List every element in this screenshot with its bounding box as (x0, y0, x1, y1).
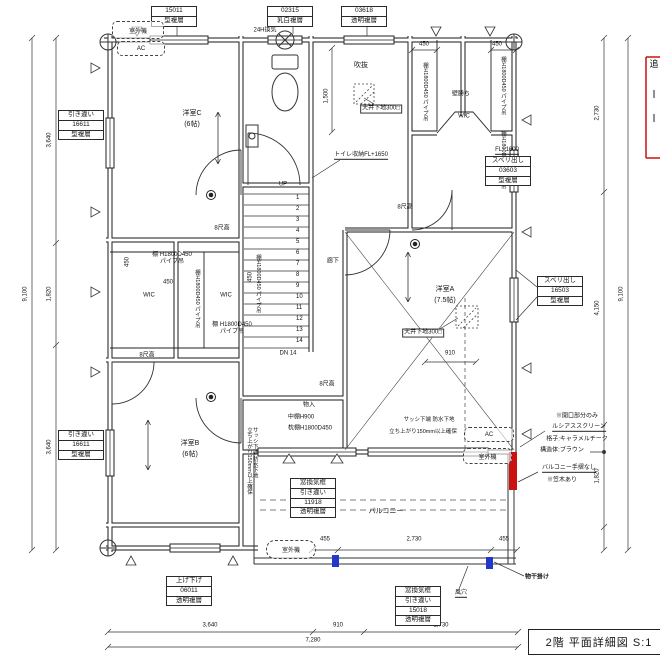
dim-balcony-3: 455 (499, 537, 509, 544)
vent24h-label: 24H換気 (253, 28, 276, 35)
dim-balcony-2: 2,730 (406, 537, 421, 544)
dim-450: 450 (419, 42, 429, 49)
ac-box-right: AC (464, 427, 514, 442)
dim-450: 450 (492, 42, 502, 49)
room-label-wic-top: WIC (458, 114, 470, 121)
outdoor-unit-box-balcony: 室外機 (266, 540, 316, 559)
dim-balcony-1: 455 (320, 537, 330, 544)
dim-bottom-2: 910 (333, 623, 343, 630)
stair-step-number: 4 (296, 226, 303, 237)
shelf-pipe-label-h: 棚 H1800D450 パイプ吊 (152, 252, 192, 266)
dim-450: 450 (163, 280, 173, 287)
height-8shaku-label: 8尺高 (319, 382, 334, 389)
room-size-yoshitsuC: (6帖) (184, 121, 200, 129)
stair-step-number: 6 (296, 248, 303, 259)
room-size-yoshitsuB: (6帖) (182, 451, 198, 459)
shelf-pipe-label-v: 棚H1800D450 パイプ吊 (421, 63, 427, 121)
tag-row: 型複層 (537, 296, 583, 307)
dim-450: 450 (248, 272, 255, 282)
dim-left-2: 1,820 (47, 286, 54, 301)
stair-step-number: 2 (296, 204, 303, 215)
height-8shaku-label: 8尺高 (214, 226, 229, 233)
shelf-pipe-label-h: 棚 H1800D450 パイプ吊 (212, 322, 252, 336)
window-tag-06011: 上げ下げ 06011 透明複層 (166, 577, 212, 606)
structure-note: 構造体:ブラウン (540, 448, 584, 455)
dim-1500: 1,500 (324, 88, 331, 103)
walls-inner-core (104, 36, 518, 552)
opening-note1: ※開口部分のみ (556, 414, 598, 421)
window-tag-03603: スベリ出し 03603 型複層 (485, 157, 531, 186)
outdoor-unit-box-right: 室外機 (463, 448, 512, 464)
toilet-fixture (246, 55, 298, 147)
dim-right-1: 2,730 (595, 105, 602, 120)
shelf-pipe-label-v: 棚H1800D450 パイプ吊 (499, 57, 505, 115)
dim-450: 450 (125, 257, 132, 267)
tag-row: 型複層 (485, 176, 531, 187)
room-label-void: 吹抜 (354, 62, 368, 70)
tag-row: 型複層 (58, 130, 104, 141)
opening-note2: ルシアススクリーン (552, 424, 606, 432)
coping-note: ※笠木あり (547, 478, 577, 485)
stair-step-number: 8 (296, 270, 303, 281)
floor-plan-sheet: 15011 型複層 02315 乳白複層 03618 透明複層 引き違い 166… (0, 0, 660, 660)
room-label-hall: 廊下 (327, 259, 339, 266)
tag-row: 型複層 (58, 450, 104, 461)
stair-step-number: 13 (296, 325, 303, 336)
closet-shelf-mid-label: 中棚H900 (288, 415, 314, 422)
sash-note-vertical: サッシ下端 防水下地 立ち上がり150mm以上確保 (245, 427, 257, 527)
height-8shaku-label: 8尺高 (139, 353, 154, 360)
room-label-wic-mid: WIC (220, 293, 232, 300)
ac-label: AC (485, 432, 493, 438)
stair-step-number: 7 (296, 259, 303, 270)
dim-left-3: 3,640 (47, 439, 54, 454)
shelf-pipe-line2: パイプ吊 (212, 329, 252, 336)
outdoor-unit-box-topleft: 室外機 (112, 21, 164, 39)
shelf-pipe-line2: パイプ吊 (152, 259, 192, 266)
room-label-yoshitsuB: 洋室B (181, 440, 200, 448)
dim-910: 910 (445, 351, 455, 358)
height-8shaku-label: 8尺高 (397, 205, 412, 212)
window-tag-16611-upper: 引き違い 16611 型複層 (58, 111, 104, 140)
dim-right-2: 4,150 (595, 300, 602, 315)
room-label-yoshitsuC: 洋室C (182, 110, 201, 118)
shelf-pipe-label-v: 棚H1800D450 パイプ吊 (193, 270, 199, 328)
tag-row: 透明複層 (166, 596, 212, 607)
room-label-closet: 物入 (303, 403, 315, 410)
stair-step-number: 1 (296, 193, 303, 204)
room-label-yoshitsuA: 洋室A (436, 286, 455, 294)
window-tag-02315: 02315 乳白複層 (267, 7, 313, 27)
stairs-up-label: UP (279, 182, 287, 189)
stair-step-number: 12 (296, 314, 303, 325)
stair-step-numbers: 1 2 3 4 5 6 7 8 9 10 11 12 13 14 (296, 193, 303, 347)
dim-left-total: 9,100 (23, 286, 30, 301)
stair-step-number: 11 (296, 303, 303, 314)
window-tag-03618: 03618 透明複層 (341, 7, 387, 27)
stair-step-number: 10 (296, 292, 303, 303)
window-tag-16611-lower: 引き違い 16611 型複層 (58, 431, 104, 460)
title-block: 2階 平面詳細図 S:1 (528, 629, 660, 655)
closet-shelf-pillow-label: 枕棚H1800D450 (288, 426, 332, 433)
window-tag-15018: 窓換気框 引き違い 15018 透明複層 (395, 587, 441, 626)
sash-note-line1: サッシ下端 防水下地 (403, 417, 454, 423)
ac-box-topleft: AC (117, 41, 165, 56)
stair-step-number: 9 (296, 281, 303, 292)
cutoff-red-note-frame (646, 57, 660, 158)
window-tag-16503: スベリ出し 16503 型複層 (537, 277, 583, 306)
laundry-pole-label: 物干掛け (525, 575, 549, 582)
tag-row: 透明複層 (341, 16, 387, 27)
sash-note-line2: 立ち上がり150mm以上確保 (389, 429, 457, 435)
wall-priority-label: 壁勝ち (452, 92, 470, 99)
dim-right-3: 1,820 (595, 468, 602, 483)
window-tag-11918: 窓換気框 引き違い 11918 透明複層 (290, 479, 336, 518)
vent-hole-label: 風穴 (455, 590, 467, 598)
dim-right-total: 9,100 (619, 286, 626, 301)
stair-step-number: 5 (296, 237, 303, 248)
sheet-title: 2階 平面詳細図 S:1 (546, 634, 653, 650)
dim-left-1: 3,640 (47, 132, 54, 147)
room-label-wic-left: WIC (143, 293, 155, 300)
outdoor-unit-label: 室外機 (478, 452, 496, 461)
dim-bottom-total: 7,280 (305, 638, 320, 645)
laundry-hook-marker (486, 557, 493, 569)
room-size-yoshitsuA: (7.5帖) (434, 297, 455, 305)
outdoor-unit-label: 室外機 (129, 26, 147, 35)
tag-row: 透明複層 (290, 507, 336, 518)
ac-label: AC (137, 46, 145, 52)
ceiling-base-label-roomA: 天井下地300□ (402, 329, 444, 338)
shelf-pipe-label-v: 棚H1800D450 パイプ吊 (254, 255, 260, 313)
stair-step-number: 3 (296, 215, 303, 226)
sash-note-line2: 立ち上がり150mm以上確保 (245, 427, 251, 527)
tag-row: 透明複層 (395, 615, 441, 626)
ceiling-base-hatch (354, 84, 478, 328)
lattice-note: 格子:キャラメルチーク (546, 437, 608, 444)
laundry-hook-marker (332, 555, 339, 567)
outdoor-unit-label: 室外機 (282, 545, 300, 554)
tag-row: 乳白複層 (267, 16, 313, 27)
balcony-rail-note: バルコニー手摺なし (542, 465, 596, 473)
dim-bottom-1: 3,640 (202, 623, 217, 630)
stair-step-number: 14 (296, 336, 303, 347)
toilet-storage-label: トイレ収納FL+1650 (334, 152, 388, 160)
stairs-dn-label: DN 14 (279, 351, 296, 358)
room-label-balcony: バルコニー (369, 508, 404, 516)
cutoff-note-text: 追 (649, 59, 658, 69)
ceiling-base-label-top: 天井下地300□ (360, 105, 402, 114)
